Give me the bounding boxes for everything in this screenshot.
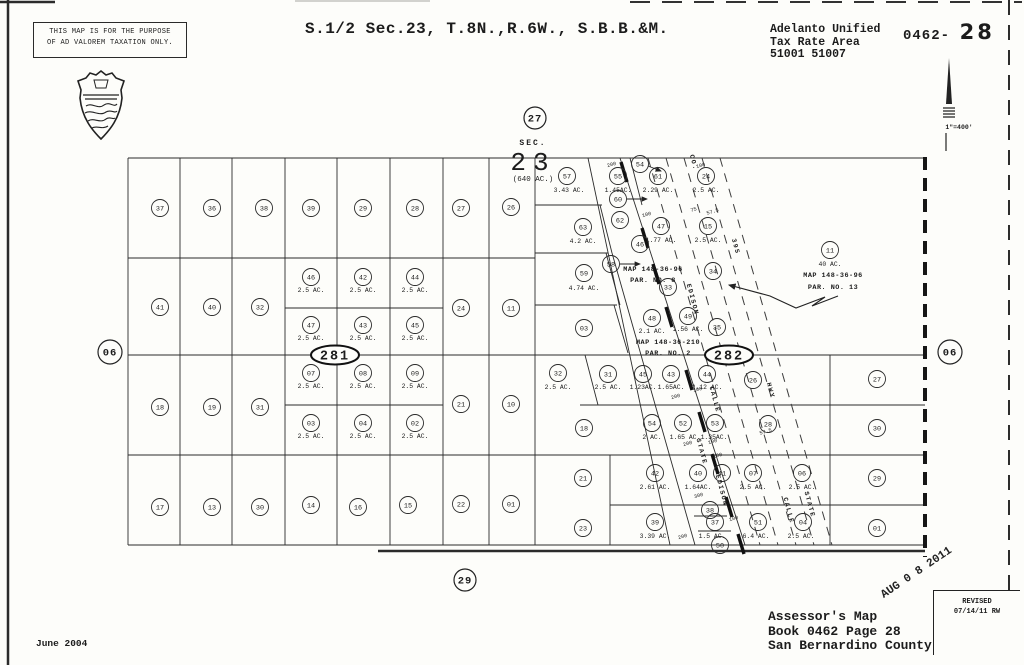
- acreage-label: 2.5 AC.: [298, 335, 325, 342]
- dimension-label: 57.5: [706, 207, 720, 216]
- parcel-number: 40: [208, 304, 216, 312]
- parcel-number: 43: [667, 371, 675, 379]
- acreage-label: 2.5 AC.: [545, 384, 572, 391]
- map-reference: PAR. NO. 2: [645, 350, 691, 358]
- parcel-number: 03: [307, 420, 315, 428]
- parcel-number: 29: [873, 475, 881, 483]
- caption-line3: San Bernardino County: [768, 639, 932, 654]
- road-name-label: EDISON: [714, 474, 729, 507]
- parcel-number: 39: [651, 519, 659, 527]
- parcel-number: 30: [256, 504, 264, 512]
- parcel-number: 51: [754, 519, 762, 527]
- acreage-label: 2.29 AC.: [643, 187, 674, 194]
- parcel-number: 22: [457, 501, 465, 509]
- acreage-label: 2.5 AC.: [298, 287, 325, 294]
- parcel-number: 24: [702, 173, 710, 181]
- parcel-number: 52: [679, 420, 687, 428]
- road-name-label: 395: [730, 238, 741, 255]
- parcel-number: 45: [411, 322, 419, 330]
- parcel-number: 30: [873, 425, 881, 433]
- adjacent-section-number: 06: [943, 348, 958, 360]
- parcel-number: 61: [654, 173, 662, 181]
- parcel-number: 26: [749, 377, 757, 385]
- parcel-number: 43: [359, 322, 367, 330]
- parcel-number: 04: [799, 519, 807, 527]
- map-date: June 2004: [36, 638, 87, 649]
- acreage-label: 2.5 AC.: [402, 335, 429, 342]
- parcel-number: 45: [639, 371, 647, 379]
- assessor-map-caption: Assessor's Map Book 0462 Page 28 San Ber…: [768, 610, 932, 654]
- parcel-number: 46: [307, 274, 315, 282]
- parcel-number: 50: [716, 542, 724, 550]
- acreage-label: 2.1 AC.: [639, 328, 666, 335]
- dimension-label: 200: [670, 393, 681, 401]
- parcel-number: 62: [616, 217, 624, 225]
- map-reference: PAR. NO. 13: [808, 284, 858, 292]
- dimension-label: 100: [641, 211, 652, 219]
- parcel-number: 18: [156, 404, 164, 412]
- adjacent-section-number: 06: [103, 348, 118, 360]
- parcel-number: 37: [156, 205, 164, 213]
- acreage-label: 1.56 AC.: [673, 326, 704, 333]
- acreage-label: 2.5 AC.: [350, 433, 377, 440]
- parcel-number: 24: [457, 305, 465, 313]
- parcel-number: 54: [636, 161, 644, 169]
- road-name-label: STATE: [695, 438, 709, 466]
- parcel-number: 42: [651, 470, 659, 478]
- acreage-label: 6.4 AC.: [743, 533, 770, 540]
- caption-line1: Assessor's Map: [768, 610, 932, 625]
- parcel-number: 63: [579, 224, 587, 232]
- parcel-number: 34: [709, 268, 717, 276]
- parcel-number: 36: [208, 205, 216, 213]
- acreage-label: 2.5 AC.: [402, 433, 429, 440]
- parcel-number: 49: [684, 313, 692, 321]
- parcel-number: 29: [359, 205, 367, 213]
- assessor-map-page: THIS MAP IS FOR THE PURPOSE OF AD VALORE…: [0, 0, 1024, 665]
- parcel-number: 14: [307, 502, 315, 510]
- parcel-number: 37: [711, 519, 719, 527]
- parcel-number: 19: [208, 404, 216, 412]
- acreage-label: 2.5 AC.: [789, 484, 816, 491]
- block-number: 281: [320, 350, 350, 365]
- parcel-number: 53: [711, 420, 719, 428]
- dimension-label: 200: [682, 440, 693, 448]
- parcel-number: 44: [703, 371, 711, 379]
- map-reference: MAP 148-36-210: [636, 339, 700, 347]
- parcel-number: 40: [694, 470, 702, 478]
- parcel-number: 31: [604, 371, 612, 379]
- revised-label: REVISED: [934, 597, 1020, 607]
- road-name-label: HWY: [765, 382, 776, 399]
- parcel-number: 02: [411, 420, 419, 428]
- parcel-number: 26: [507, 204, 515, 212]
- parcel-number: 33: [664, 284, 672, 292]
- acreage-label: 4.2 AC.: [570, 238, 597, 245]
- dimension-label: 75: [690, 206, 698, 213]
- dimension-label: 300: [693, 492, 704, 500]
- acreage-label: 2.5 AC.: [693, 187, 720, 194]
- parcel-number: 59: [580, 270, 588, 278]
- map-reference: MAP 148-36-96: [623, 266, 683, 274]
- adjacent-section-number: 29: [458, 576, 473, 588]
- parcel-number: 04: [359, 420, 367, 428]
- acreage-label: 2 AC.: [642, 434, 661, 441]
- parcel-number: 27: [873, 376, 881, 384]
- acreage-label: 2.5 AC.: [788, 533, 815, 540]
- grid-line: [585, 355, 598, 405]
- parcel-number: 35: [713, 324, 721, 332]
- parcel-number: 06: [798, 470, 806, 478]
- edison-line-tick: [699, 412, 705, 432]
- parcel-map-canvas: 37363839292827264140322411462.5 AC.422.5…: [0, 0, 1024, 665]
- parcel-number: 60: [614, 196, 622, 204]
- acreage-label: 1.77 AC.: [646, 237, 677, 244]
- parcel-number: 13: [208, 504, 216, 512]
- parcel-number: 54: [648, 420, 656, 428]
- parcel-number: 07: [749, 470, 757, 478]
- parcel-number: 48: [648, 315, 656, 323]
- parcel-number: 42: [359, 274, 367, 282]
- revised-date: 07/14/11 RW: [934, 607, 1020, 617]
- acreage-label: 4.74 AC.: [569, 285, 600, 292]
- parcel-number: 21: [457, 401, 465, 409]
- parcel-number: 46: [636, 241, 644, 249]
- caption-line2: Book 0462 Page 28: [768, 625, 932, 640]
- dimension-label: 100: [692, 386, 703, 394]
- adjacent-section-number: 27: [528, 114, 543, 126]
- parcel-number: 09: [411, 370, 419, 378]
- parcel-number: 41: [156, 304, 164, 312]
- parcel-number: 47: [307, 322, 315, 330]
- acreage-label: 2.5 AC.: [298, 433, 325, 440]
- dimension-label: 100: [712, 452, 723, 460]
- block-number: 282: [714, 350, 744, 365]
- acreage-label: 2.5 AC.: [350, 335, 377, 342]
- acreage-label: 2.5 AC.: [298, 383, 325, 390]
- parcel-number: 55: [614, 173, 622, 181]
- acreage-label: 40 AC.: [818, 261, 841, 268]
- parcel-number: 47: [657, 223, 665, 231]
- acreage-label: 2.5 AC.: [740, 484, 767, 491]
- dimension-label: 100: [695, 162, 706, 170]
- parcel-number: 08: [359, 370, 367, 378]
- road-name-label: EDISON: [685, 283, 700, 316]
- parcel-number: 38: [260, 205, 268, 213]
- grid-line: [600, 205, 612, 253]
- parcel-number: 32: [256, 304, 264, 312]
- parcel-number: 10: [507, 401, 515, 409]
- parcel-number: 03: [580, 325, 588, 333]
- parcel-number: 11: [507, 305, 515, 313]
- acreage-label: 1.64AC.: [685, 484, 712, 491]
- parcel-number: 23: [579, 525, 587, 533]
- section-acres: (640 AC.): [513, 176, 554, 184]
- acreage-label: 3.39 AC.: [640, 533, 671, 540]
- parcel-number: 44: [411, 274, 419, 282]
- parcel-number: 32: [554, 370, 562, 378]
- road-name-label: CALLE: [782, 497, 796, 525]
- acreage-label: 2.5 AC.: [350, 383, 377, 390]
- acreage-label: 2.5 AC.: [402, 287, 429, 294]
- parcel-number: 31: [256, 404, 264, 412]
- acreage-label: 2.5 AC.: [695, 237, 722, 244]
- parcel-number: 18: [580, 425, 588, 433]
- acreage-label: 1.65AC.: [658, 384, 685, 391]
- acreage-label: 2.5 AC.: [595, 384, 622, 391]
- section-word: SEC.: [519, 139, 546, 148]
- acreage-label: 1.23AC.: [630, 384, 657, 391]
- parcel-number: 28: [411, 205, 419, 213]
- parcel-number: 57: [563, 173, 571, 181]
- section-number: 23: [510, 148, 555, 178]
- parcel-number: 01: [873, 525, 881, 533]
- parcel-number: 27: [457, 205, 465, 213]
- parcel-number: 58: [607, 261, 615, 269]
- map-reference: PAR. NO. 8: [630, 277, 676, 285]
- parcel-number: 01: [507, 501, 515, 509]
- grid-line: [612, 253, 695, 545]
- acreage-label: 2.5 AC.: [402, 383, 429, 390]
- dimension-label: 100: [707, 438, 718, 446]
- acreage-label: 3.43 AC.: [554, 187, 585, 194]
- parcel-number: 16: [354, 504, 362, 512]
- revised-box: REVISED 07/14/11 RW: [933, 590, 1020, 655]
- acreage-label: 2.5 AC.: [350, 287, 377, 294]
- acreage-label: 2.61 AC.: [640, 484, 671, 491]
- map-reference: MAP 148-36-96: [803, 272, 863, 280]
- dimension-label: 200: [677, 533, 688, 541]
- parcel-number: 17: [156, 504, 164, 512]
- parcel-number: 21: [579, 475, 587, 483]
- parcel-number: 15: [704, 223, 712, 231]
- parcel-number: 07: [307, 370, 315, 378]
- parcel-number: 15: [404, 502, 412, 510]
- parcel-number: 39: [307, 205, 315, 213]
- parcel-number: 11: [826, 247, 834, 255]
